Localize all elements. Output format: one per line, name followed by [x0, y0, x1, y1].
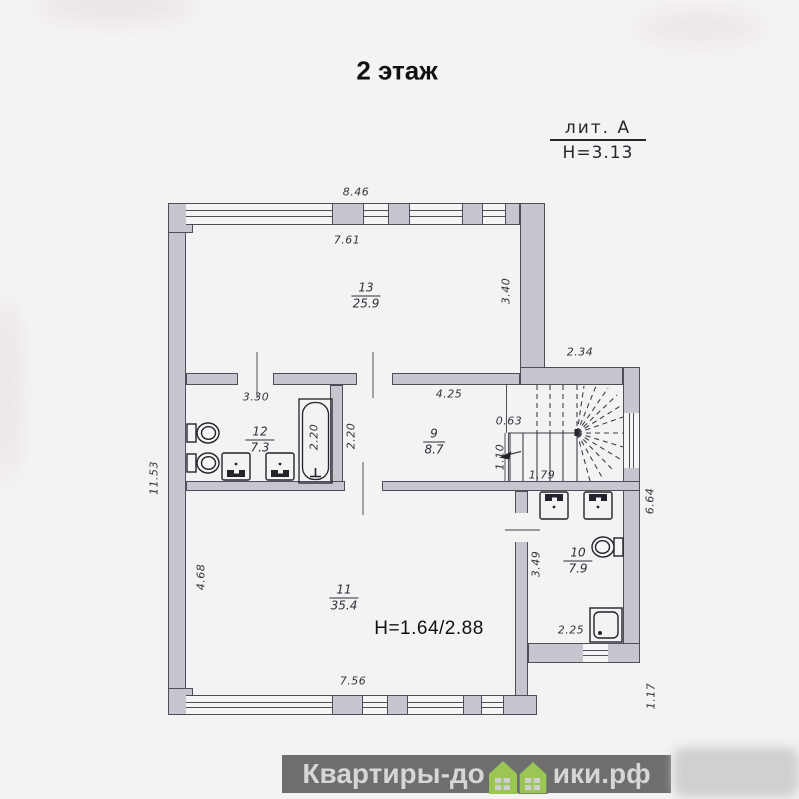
dim-room9-width: 4.25 [436, 388, 463, 401]
floor-plan-page: 2 этаж лит. А Н=3.13 [0, 0, 799, 799]
room-10-area: 7.9 [568, 562, 587, 577]
room-9-area: 8.7 [424, 443, 443, 458]
stairs-winder-center [575, 429, 579, 436]
room-10-label: 10 7.9 [563, 546, 592, 577]
watermark-text-right: ики.рф [553, 758, 651, 790]
room-11-label: 11 35.4 [329, 583, 358, 614]
room-13-number: 13 [351, 281, 380, 297]
shower-tray-icon [590, 608, 622, 642]
room-10-number: 10 [563, 546, 592, 562]
room-9-label: 9 8.7 [423, 427, 445, 458]
dim-stair-gap: 0.63 [496, 415, 523, 428]
sink-icon [222, 453, 250, 480]
dim-extension-width: 2.34 [567, 346, 594, 359]
toilet-icon [592, 537, 623, 557]
dim-top-width: 8.46 [343, 186, 370, 199]
room-12-area: 7.3 [250, 441, 269, 456]
sink-icon [540, 492, 568, 519]
houses-icon [487, 758, 551, 794]
sink-icon [266, 453, 294, 480]
dim-room11-left-height: 4.68 [195, 564, 208, 591]
dim-room11-width: 7.56 [340, 675, 367, 688]
toilet-icon [187, 453, 219, 473]
room-9-number: 9 [423, 427, 445, 443]
stairs-winder [499, 385, 623, 481]
dim-room10-width: 2.25 [558, 624, 585, 637]
plan-linework [0, 0, 799, 799]
dim-left-height: 11.53 [148, 461, 161, 495]
watermark: Квартиры-до ики.рф [282, 755, 671, 793]
watermark-text-left: Квартиры-до [302, 758, 484, 790]
dim-room10-left-height: 3.49 [530, 551, 543, 578]
dim-step-height: 1.17 [645, 683, 658, 710]
dim-right-height: 6.64 [644, 488, 657, 515]
ceiling-height-note: Н=1.64/2.88 [374, 618, 484, 640]
room-13-label: 13 25.9 [351, 281, 380, 312]
blurred-logo [673, 747, 799, 797]
room-12-number: 12 [245, 425, 274, 441]
dim-room12-width: 3.30 [243, 391, 270, 404]
room-13-area: 25.9 [353, 297, 380, 312]
room-11-area: 35.4 [331, 599, 358, 614]
room-11-number: 11 [329, 583, 358, 599]
dim-stair-wall: 1.10 [494, 444, 507, 471]
dim-stair-run: 1.79 [529, 469, 556, 482]
dim-bathtub-length: 2.20 [308, 424, 321, 451]
sink-icon [584, 492, 612, 519]
dim-room13-width: 7.61 [334, 234, 361, 247]
room-12-label: 12 7.3 [245, 425, 274, 456]
dim-room9-height: 2.20 [345, 423, 358, 450]
toilet-icon [187, 423, 219, 443]
dim-room13-height: 3.40 [500, 278, 513, 305]
